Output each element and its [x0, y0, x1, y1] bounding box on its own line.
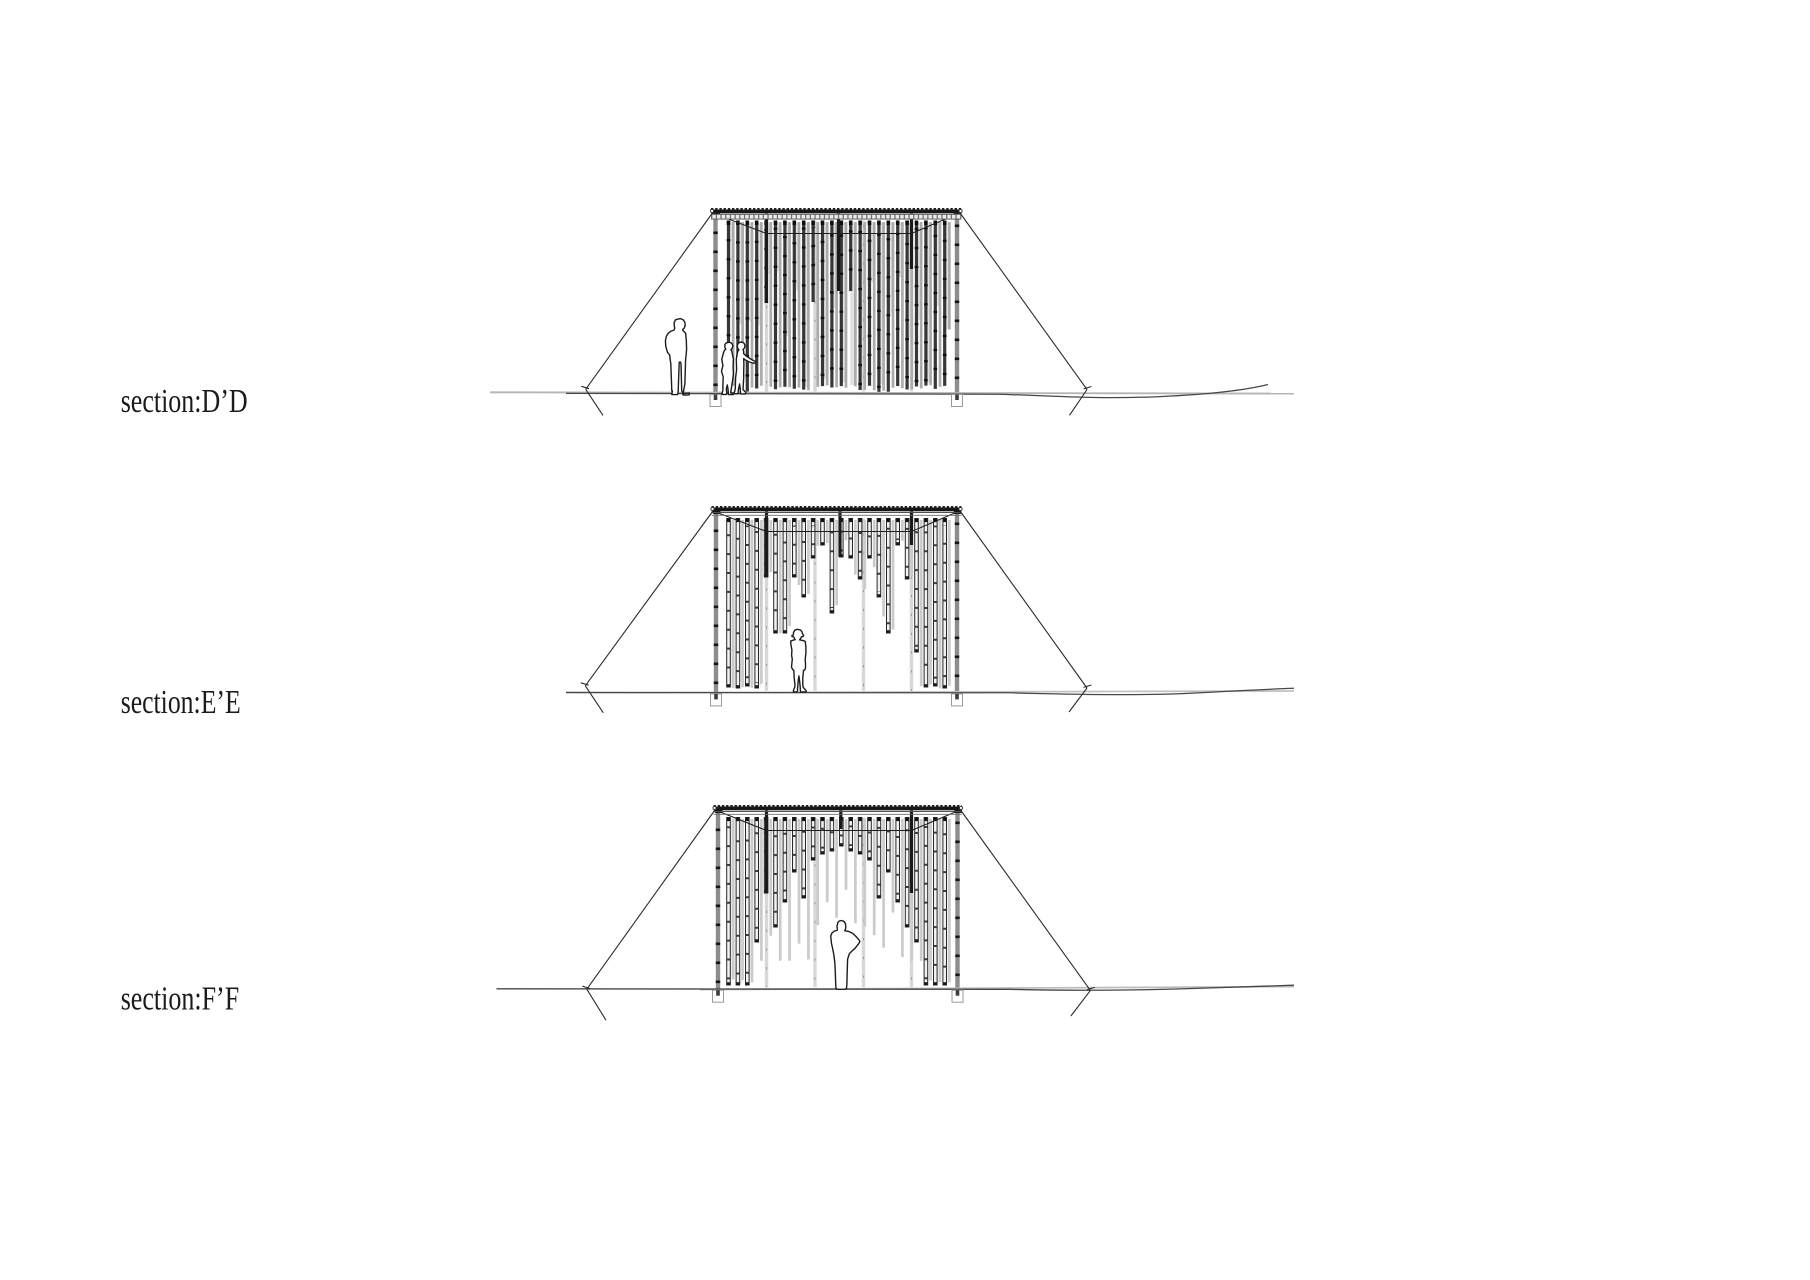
svg-text:section:E’E: section:E’E: [121, 684, 241, 721]
svg-text:section:F’F: section:F’F: [121, 981, 240, 1018]
svg-text:section:D’D: section:D’D: [121, 383, 248, 420]
